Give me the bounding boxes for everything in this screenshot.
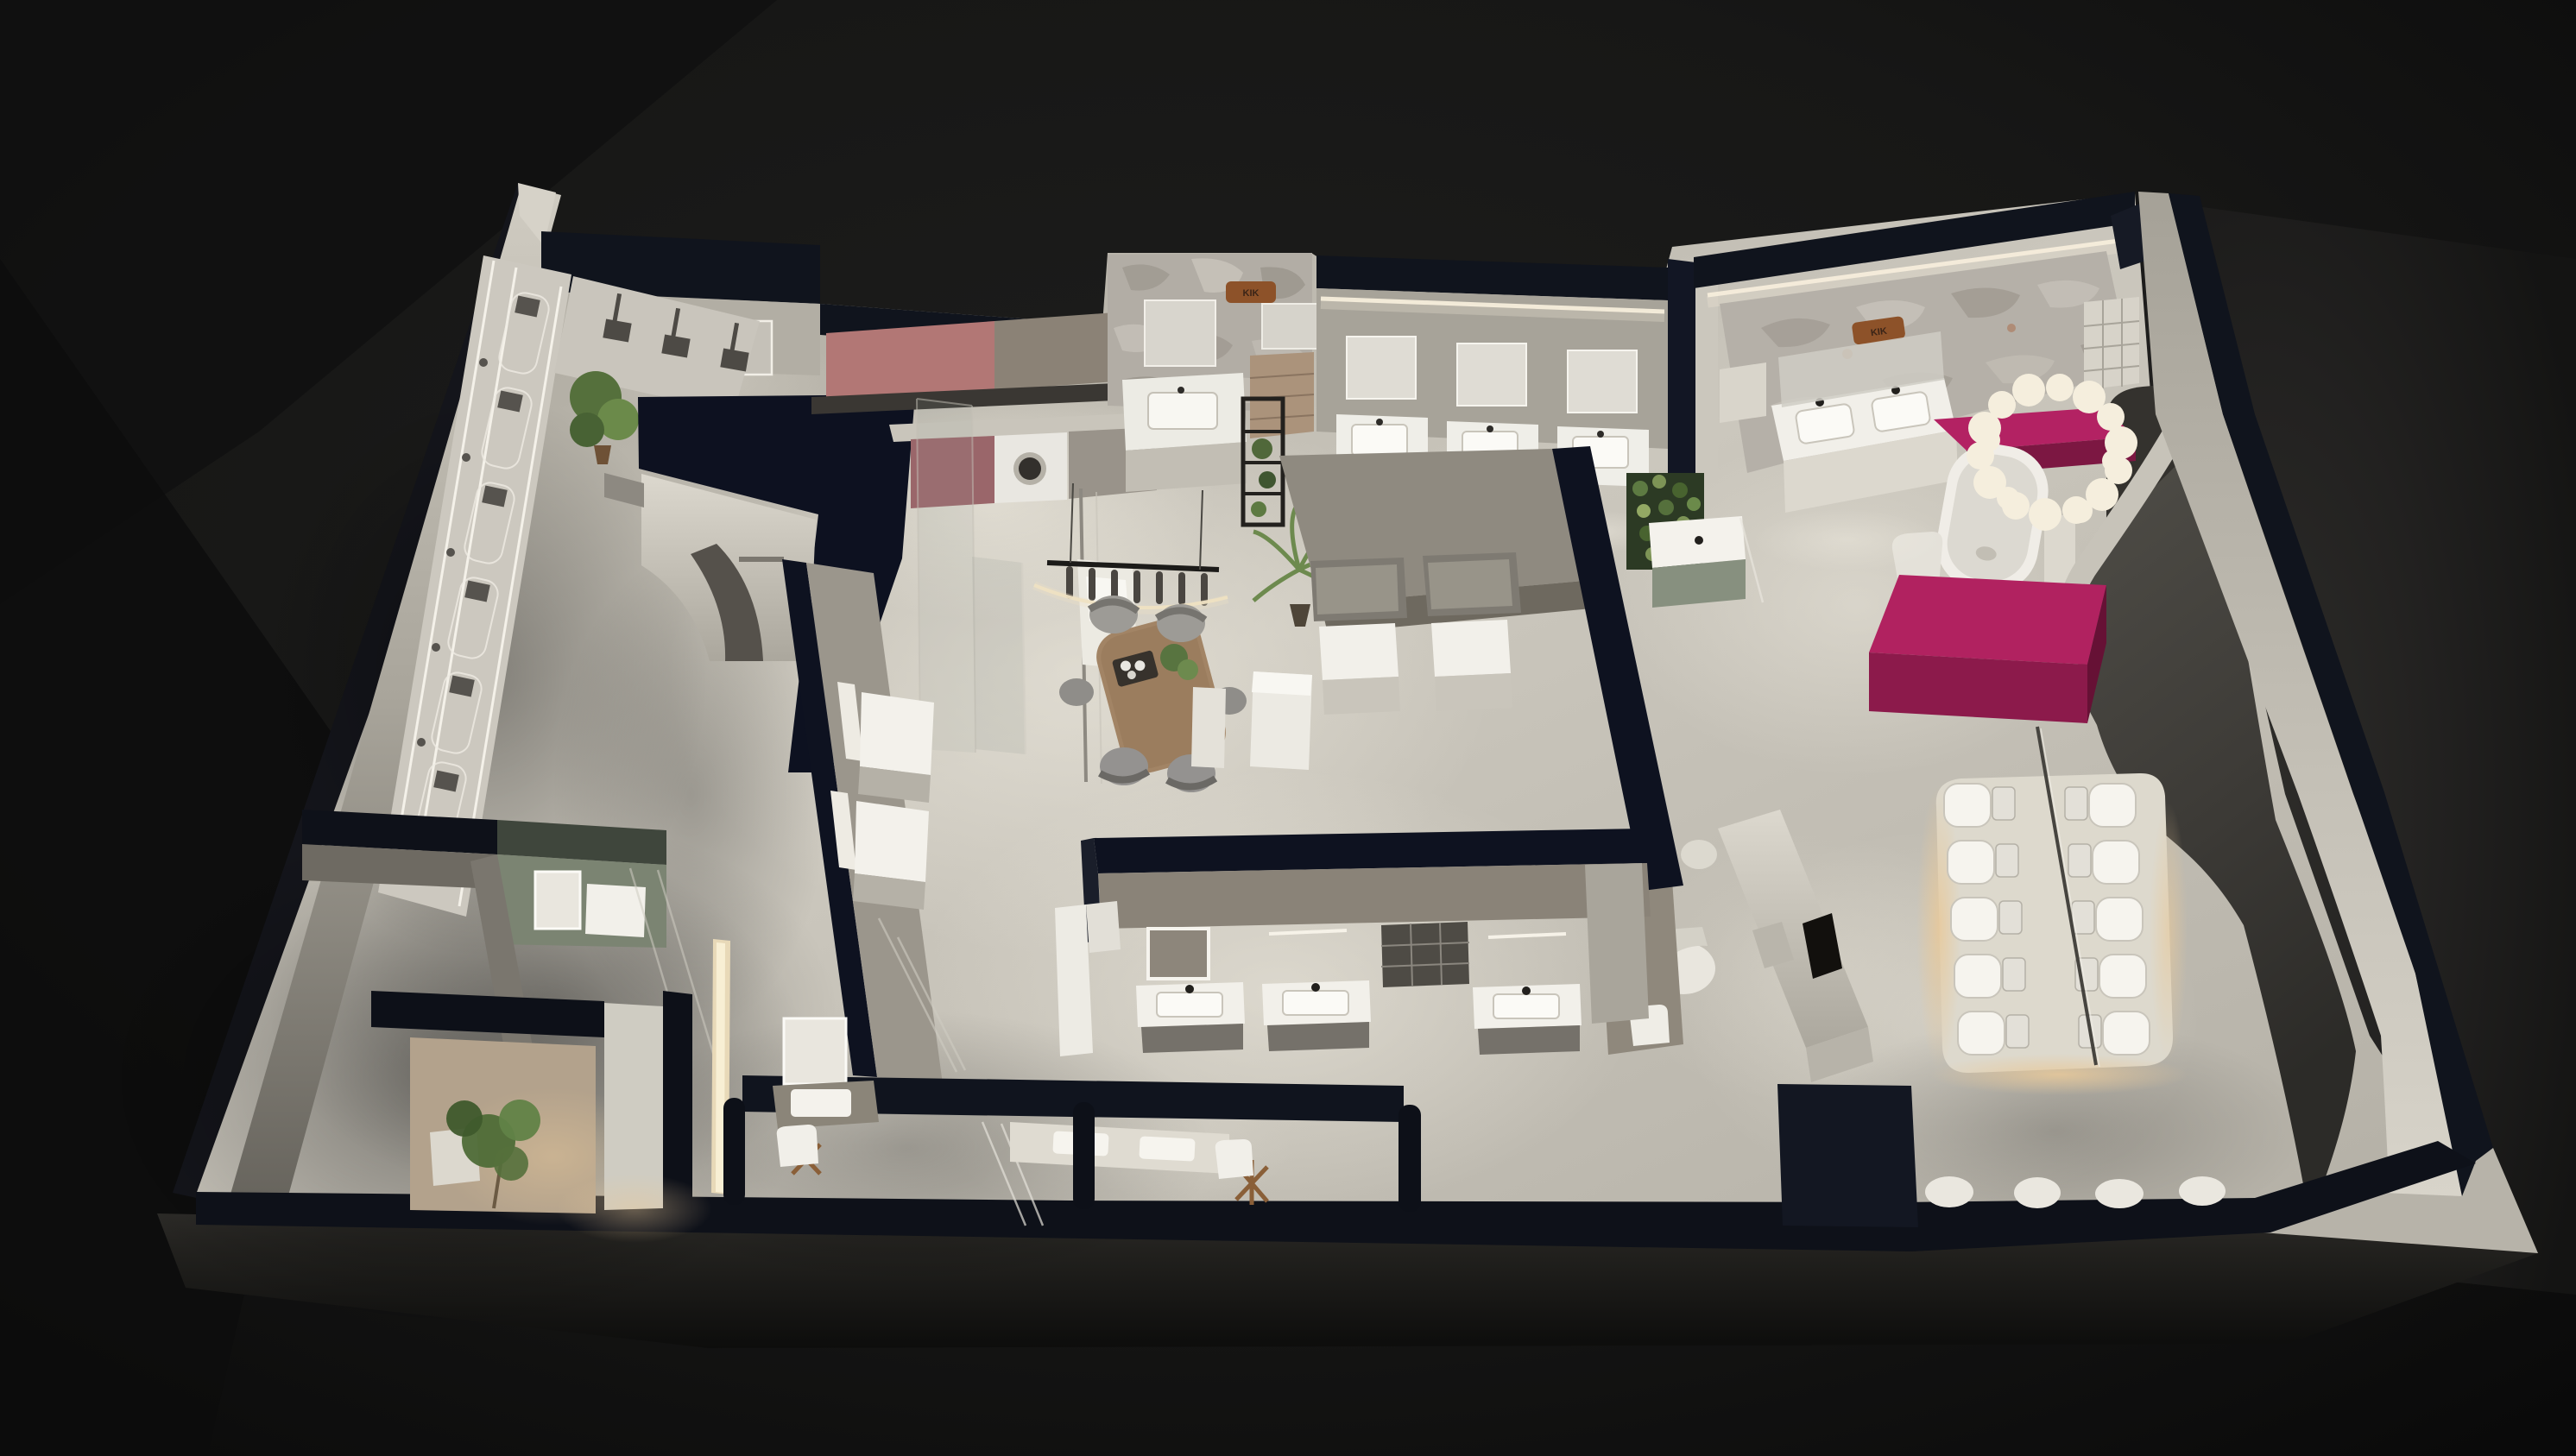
svg-text:KIK: KIK (1243, 288, 1260, 299)
